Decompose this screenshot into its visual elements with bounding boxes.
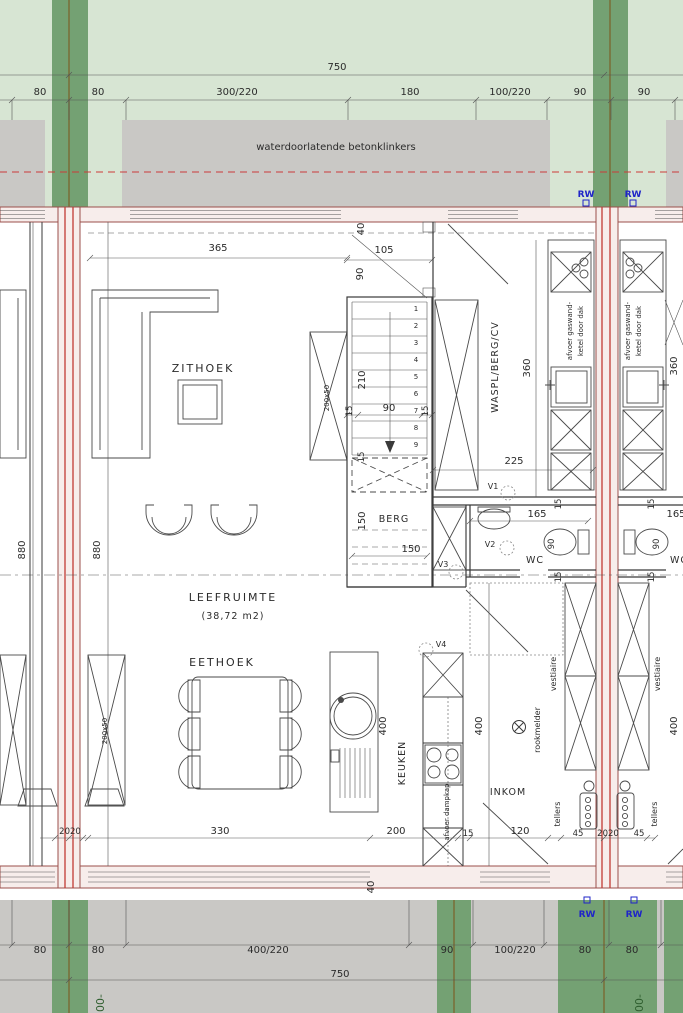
toilet-cistern-right: [624, 530, 635, 554]
site-top: 750 80 80 300/220 180 100/220 90 90 wate…: [0, 0, 683, 207]
floor-plan-drawing: 750 80 80 300/220 180 100/220 90 90 wate…: [0, 0, 683, 1013]
dim-label: 15: [345, 406, 355, 417]
party-wall-left: [58, 207, 80, 888]
floor-plan-page: 750 80 80 300/220 180 100/220 90 90 wate…: [0, 0, 683, 1013]
dim-label: 330: [210, 826, 229, 837]
dim-label: 210: [357, 370, 368, 389]
rainwater-pipe-label: RW: [626, 910, 643, 920]
drainer-lines: [340, 748, 370, 798]
boiler-flue-note: ketel door dak: [577, 305, 585, 356]
meters-label: tellers: [553, 802, 562, 827]
room-label-vestiaire-right: vestiaire: [653, 657, 662, 691]
dim-lot-width: 750: [330, 969, 349, 980]
hall-dashed-zone: [470, 583, 563, 655]
side-table: [178, 380, 222, 424]
waspl-wc-hall: WASPL/BERG/CV afvoer gaswand- ketel door…: [347, 222, 596, 655]
meter-cabinet-right: [617, 781, 634, 829]
site-bottom: 80 80 400/220 90 100/220 80 80 750 RW RW…: [0, 897, 683, 1013]
paving-band: [122, 120, 550, 207]
dim-label: 15: [647, 499, 657, 510]
stair-step-number: 5: [414, 373, 418, 381]
vent-label-v3: V3: [438, 560, 449, 569]
neighbour-unit-right: afvoer gaswand- ketel door dak 360 165 9…: [617, 240, 683, 829]
dim-label: 300/220: [216, 87, 258, 98]
cooktop: [425, 745, 461, 783]
dim-label: 40: [356, 223, 367, 236]
vent-label-v4: V4: [436, 640, 447, 649]
party-wall-right: [596, 207, 618, 888]
cabinet-size-label: 200x50: [323, 385, 331, 411]
right-unit-partial-lines: [665, 300, 683, 345]
kitchen-wall-units: afvoer dampkap: [423, 653, 463, 866]
room-label-vestiaire: vestiaire: [549, 657, 558, 691]
dim-label: 165: [527, 509, 546, 520]
neighbour-cabinet: [0, 655, 26, 805]
armchairs: [146, 505, 257, 535]
dim-label: 200: [386, 826, 405, 837]
hedge-strip: [52, 900, 88, 1013]
dim-label: 180: [400, 87, 419, 98]
stair-step-number: 4: [414, 356, 419, 364]
paving-band: [666, 120, 683, 207]
vent-point: [501, 486, 515, 500]
paving-band: [0, 120, 45, 207]
boiler-connection: [572, 264, 580, 272]
dim-label: 15: [421, 406, 431, 417]
boiler-flue-note: afvoer gaswand-: [566, 301, 574, 360]
smoke-detector: [513, 721, 526, 734]
dim-label: 400/220: [247, 945, 289, 956]
stair-step-number: 1: [414, 305, 418, 313]
dim-label: 80: [34, 945, 47, 956]
dining-set: [179, 677, 302, 789]
smoke-detector-label: rookmelder: [533, 706, 542, 752]
vent-point: [449, 565, 463, 579]
room-label-zithoek: ZITHOEK: [172, 362, 235, 375]
utility-column-right: afvoer gaswand- ketel door dak: [620, 240, 669, 490]
room-label-keuken: KEUKEN: [397, 741, 408, 786]
room-label-leefruimte: LEEFRUIMTE: [189, 591, 277, 604]
faucet-icon: [545, 380, 555, 390]
vent-label-v2: V2: [485, 540, 496, 549]
hedge-strip: [664, 900, 683, 1013]
kitchen-island: [330, 652, 378, 812]
neighbour-wall-lines: [30, 222, 42, 866]
stair-step-number: 2: [414, 322, 418, 330]
neighbour-sofa: [0, 290, 26, 458]
dim-lot-width: 750: [327, 62, 346, 73]
dim-label: 90: [441, 945, 454, 956]
dim-label: 15: [357, 452, 367, 463]
level-marker: 00-: [633, 994, 646, 1012]
dim-label: 80: [626, 945, 639, 956]
stair-direction-arrow: [385, 441, 395, 453]
room-label-inkom: INKOM: [490, 787, 526, 798]
dim-label: 90: [574, 87, 587, 98]
vestiaire-closet-right: [618, 583, 649, 770]
dim-line-365: [87, 255, 350, 261]
utility-sink: [551, 367, 591, 407]
exterior-wall-top: [0, 207, 683, 222]
dim-label: 15: [554, 499, 564, 510]
dim-label: 100/220: [494, 945, 536, 956]
dim-label: 360: [669, 356, 680, 375]
dim-label: 400: [474, 716, 485, 735]
vent-point: [419, 643, 433, 657]
dim-label: 90: [652, 539, 662, 550]
room-label-waspl: WASPL/BERG/CV: [490, 321, 501, 412]
dim-room-depth: 880: [92, 540, 103, 559]
stair-step-number: 6: [414, 390, 419, 398]
dim-label: 40: [366, 881, 377, 894]
meters-label-right: tellers: [650, 802, 659, 827]
dim-label: 90: [638, 87, 651, 98]
island-sink: [330, 693, 376, 739]
dim-label: 80: [92, 945, 105, 956]
dim-label: 150: [401, 544, 420, 555]
stair-step-number: 9: [414, 441, 418, 449]
rainwater-pipe-label: RW: [625, 190, 642, 200]
faucet: [338, 697, 344, 703]
dim-label: 360: [522, 358, 533, 377]
dim-label: 105: [374, 245, 393, 256]
level-marker: 00-: [94, 994, 107, 1012]
entrance-door-swing-right-unit: [668, 849, 683, 864]
dim-label: 45: [634, 829, 645, 839]
room-label-berg: BERG: [379, 514, 409, 525]
stair-step-number: 7: [414, 407, 418, 415]
dim-label: 2020: [597, 829, 619, 839]
dim-label: 165: [666, 509, 683, 520]
toilet-cistern: [578, 530, 589, 554]
waspl-appliance-box: [435, 300, 478, 490]
dim-label: 400: [378, 716, 389, 735]
paving-material-label: waterdoorlatende betonklinkers: [256, 142, 415, 153]
boiler-connection: [580, 270, 588, 278]
dim-label: 80: [92, 87, 105, 98]
utility-column: afvoer gaswand- ketel door dak: [545, 240, 594, 490]
dim-label: 90: [355, 268, 366, 281]
wall-cabinet: 200x50: [310, 332, 347, 460]
cabinet-size-label: 200x50: [101, 718, 109, 744]
berg-storage: BERG 150 150: [349, 458, 430, 564]
rainwater-pipe-label: RW: [578, 190, 595, 200]
vestiaire-closet: [565, 583, 596, 770]
dim-label: 120: [510, 826, 529, 837]
room-area-label: (38,72 m2): [202, 611, 265, 622]
dim-room-depth: 880: [17, 540, 28, 559]
vent-label-v1: V1: [488, 482, 499, 491]
dim-label: 45: [573, 829, 584, 839]
dim-label: 80: [579, 945, 592, 956]
vestiaire-inkom: vestiaire rookmelder 400 INKOM tellers: [474, 583, 597, 866]
boiler-flue-note: afvoer gaswand-: [624, 301, 632, 360]
dim-label: 400: [669, 716, 680, 735]
dim-label: 90: [547, 539, 557, 550]
dim-label: 90: [383, 403, 396, 414]
dim-label: 80: [34, 87, 47, 98]
dim-label: 100/220: [489, 87, 531, 98]
vent-point: [500, 541, 514, 555]
stair-step-number: 3: [414, 339, 418, 347]
hood-exhaust-note: afvoer dampkap: [443, 783, 451, 841]
meter-cabinet: [580, 781, 597, 829]
staircase-berg: 1 2 3 4 5 6 7 8 9 105 40 90 210 15 90 15…: [344, 222, 435, 587]
dim-label: 365: [208, 243, 227, 254]
wc-door-swing: [466, 590, 528, 652]
dim-label: 15: [554, 572, 564, 583]
rainwater-pipe-label: RW: [579, 910, 596, 920]
dim-label: 15: [463, 829, 474, 839]
wall-cabinet: 200x50: [88, 655, 125, 805]
dim-label: 150: [357, 511, 368, 530]
hedge-strip: [52, 0, 88, 207]
stair-step-number: 8: [414, 424, 418, 432]
dim-label: 2020: [59, 827, 81, 837]
room-label-wc: WC: [526, 555, 544, 566]
dim-line-interior: [40, 835, 658, 841]
dim-label: 225: [504, 456, 523, 467]
room-label-wc-right: WC: [670, 555, 683, 566]
room-label-eethoek: EETHOEK: [189, 656, 255, 669]
dim-label: 15: [647, 572, 657, 583]
boiler-flue-note: ketel door dak: [635, 305, 643, 356]
